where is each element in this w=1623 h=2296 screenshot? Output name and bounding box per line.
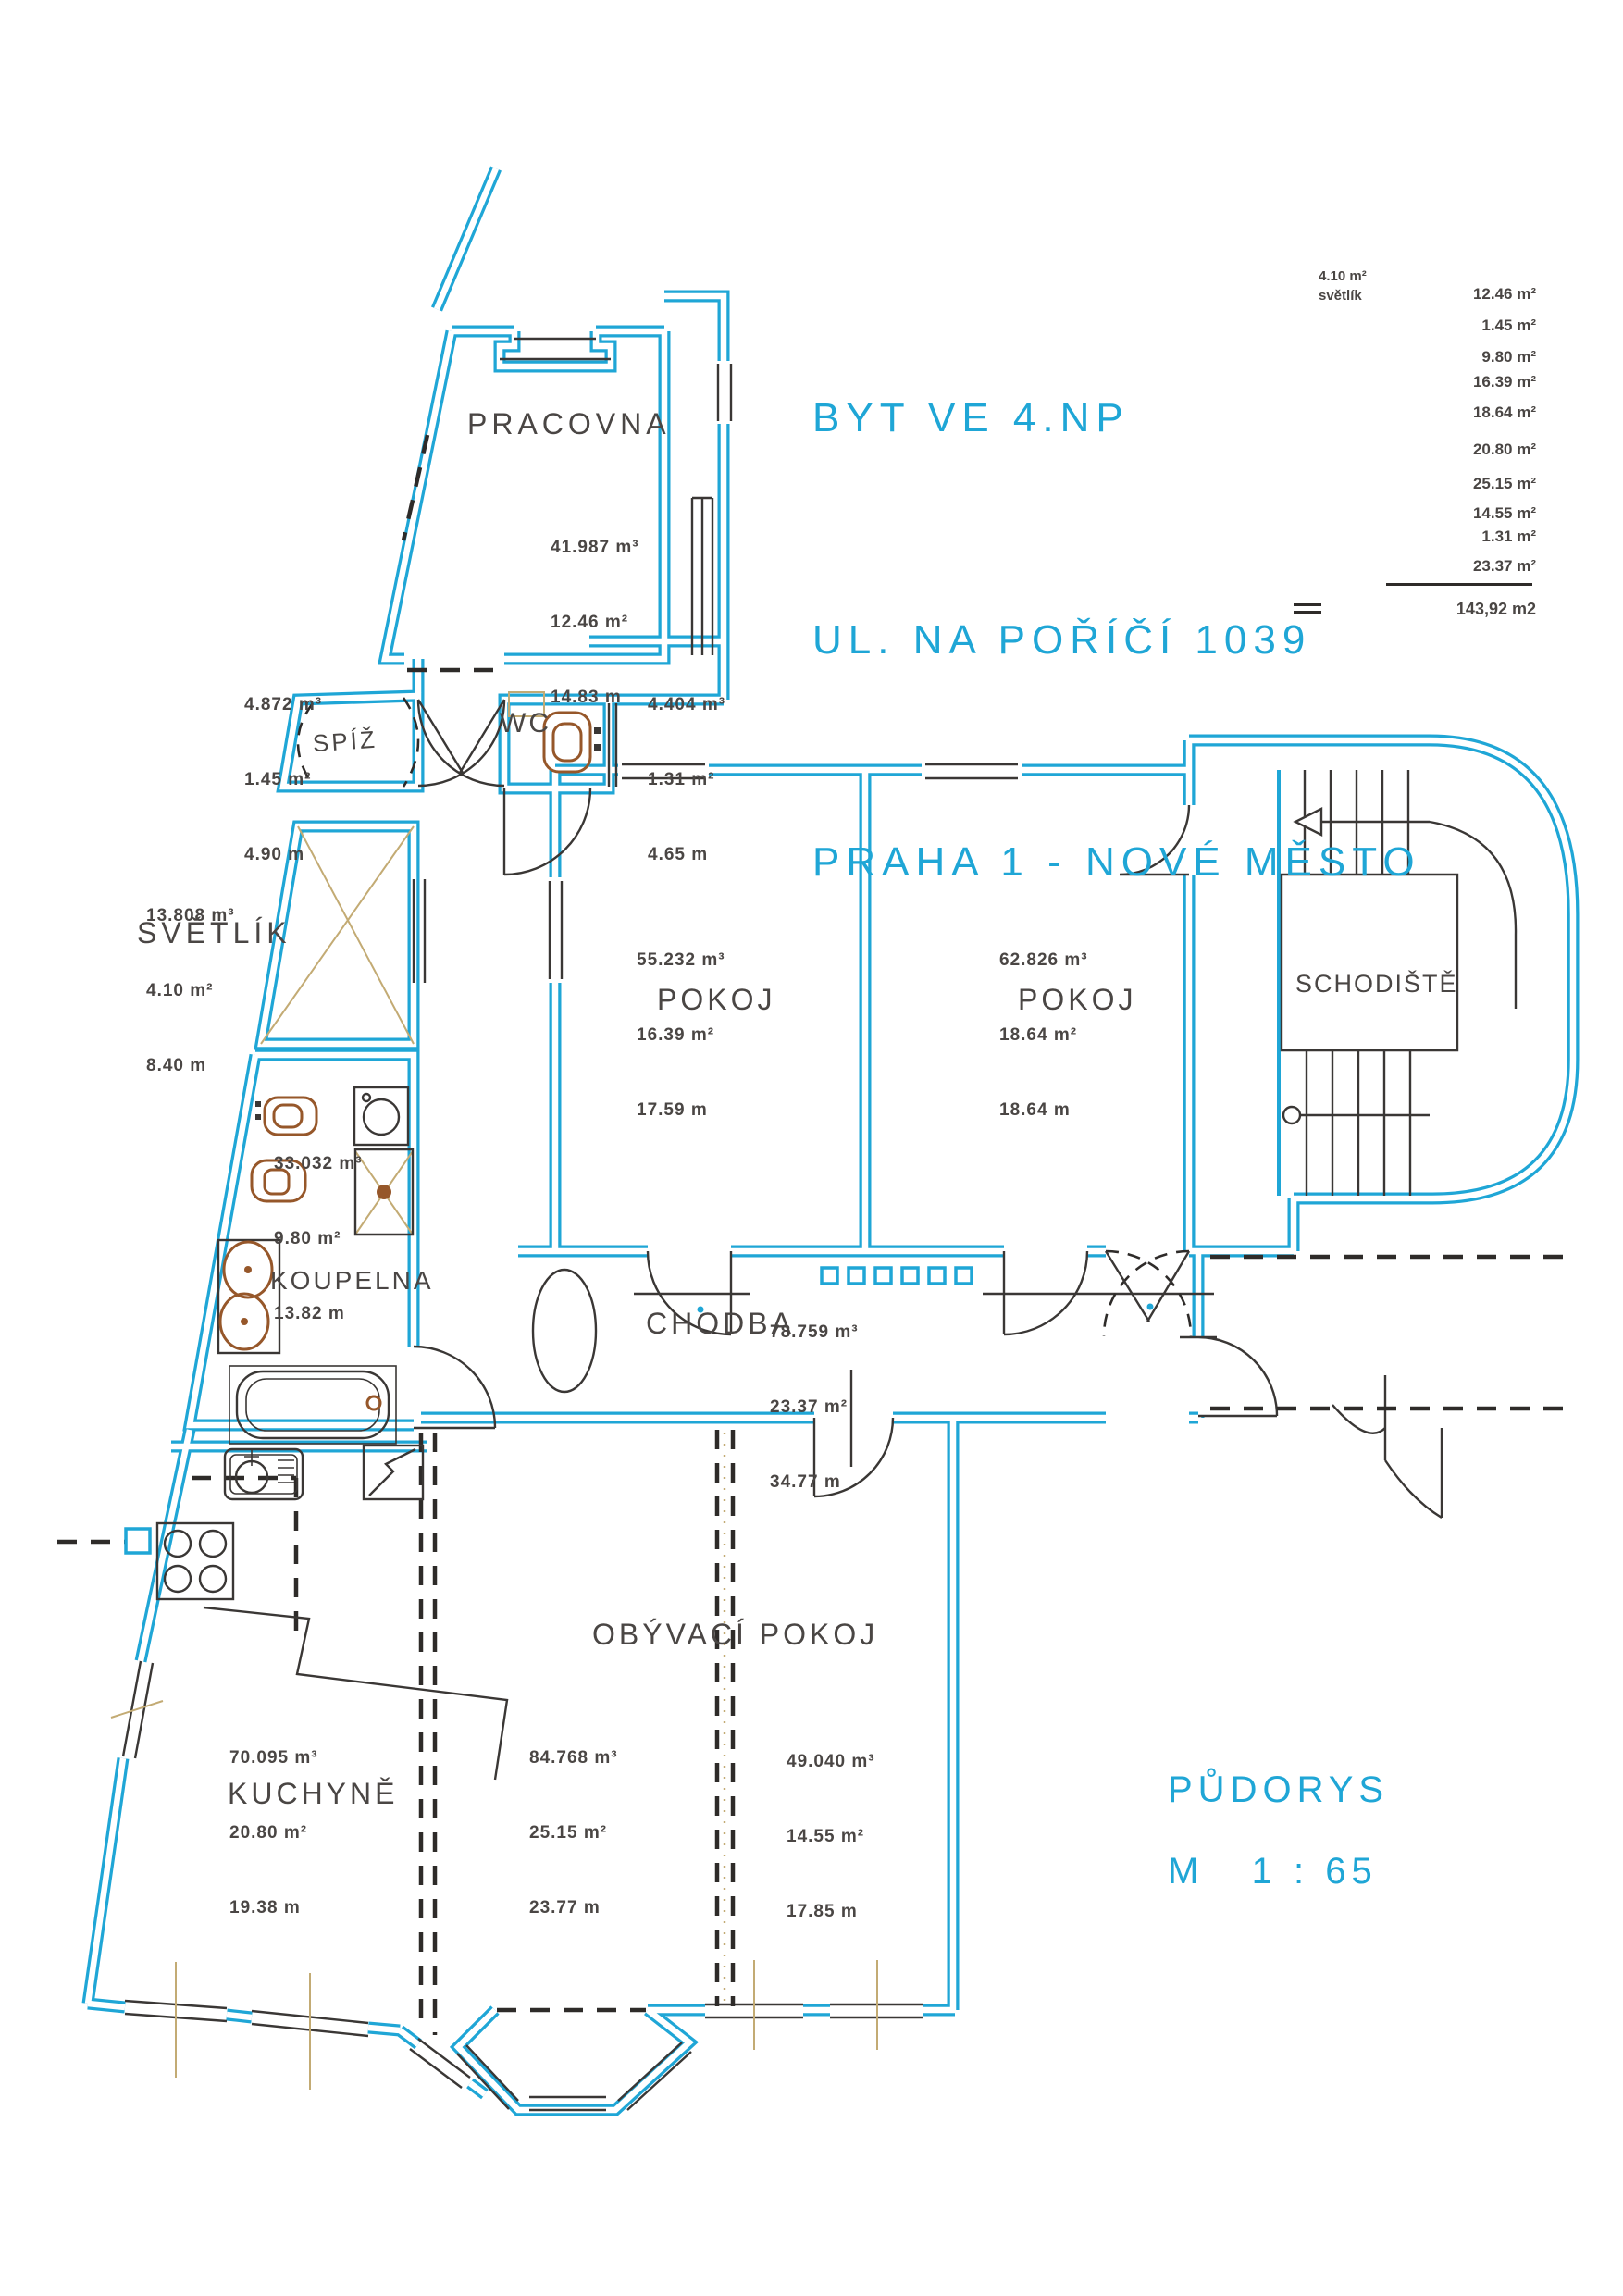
chodba-perimeter: 34.77 m bbox=[770, 1470, 859, 1495]
obyvaci-label: OBÝVACÍ POKOJ bbox=[592, 1618, 878, 1652]
drawing-scale-label: M 1 : 65 bbox=[1168, 1851, 1378, 1893]
kuchyne-label: KUCHYNĚ bbox=[228, 1777, 398, 1811]
wc-perimeter: 4.65 m bbox=[648, 842, 725, 867]
summary-equals-mark bbox=[1294, 603, 1321, 606]
pokoj2-perimeter: 18.64 m bbox=[999, 1098, 1088, 1123]
summary-area-row: 25.15 m² bbox=[1430, 475, 1536, 493]
summary-area-row: 23.37 m² bbox=[1430, 557, 1536, 576]
pokoj2-area: 18.64 m² bbox=[999, 1023, 1088, 1048]
wc-values: 4.404 m³ 1.31 m² 4.65 m bbox=[648, 642, 725, 917]
svetlik-perimeter: 8.40 m bbox=[146, 1053, 235, 1078]
summary-area-row: 9.80 m² bbox=[1430, 348, 1536, 366]
summary-area-row: 1.45 m² bbox=[1430, 316, 1536, 335]
summary-svetlik-area: 4.10 m² bbox=[1319, 267, 1367, 286]
svetlik-label: SVĚTLÍK bbox=[137, 916, 291, 950]
koupelna-area: 9.80 m² bbox=[274, 1226, 363, 1251]
koupelna-label: KOUPELNA bbox=[270, 1266, 434, 1296]
obyvaci-right-values: 49.040 m³ 14.55 m² 17.85 m bbox=[787, 1699, 875, 1974]
summary-svetlik-label: světlík bbox=[1319, 286, 1367, 305]
kuchyne-values: 70.095 m³ 20.80 m² 19.38 m bbox=[229, 1695, 318, 1970]
chodba-volume: 78.759 m³ bbox=[770, 1320, 859, 1345]
summary-area-row: 18.64 m² bbox=[1430, 403, 1536, 422]
spiz-label: SPÍŽ bbox=[312, 726, 378, 759]
kuchyne-volume: 70.095 m³ bbox=[229, 1745, 318, 1770]
title-line-1: BYT VE 4.NP bbox=[812, 381, 1421, 455]
pracovna-area: 12.46 m² bbox=[551, 610, 639, 635]
drawing-title: BYT VE 4.NP UL. NA POŘÍČÍ 1039 PRAHA 1 -… bbox=[812, 233, 1421, 1048]
wc-area: 1.31 m² bbox=[648, 767, 725, 792]
summary-total-rule bbox=[1386, 583, 1532, 586]
schodiste-label: SCHODIŠTĚ bbox=[1295, 970, 1458, 999]
chodba-area: 23.37 m² bbox=[770, 1395, 859, 1420]
pracovna-values: 41.987 m³ 12.46 m² 14.83 m bbox=[551, 485, 639, 760]
obyvaci-right-volume: 49.040 m³ bbox=[787, 1749, 875, 1774]
pokoj1-perimeter: 17.59 m bbox=[637, 1098, 725, 1123]
summary-area-row: 16.39 m² bbox=[1430, 373, 1536, 391]
title-line-2: UL. NA POŘÍČÍ 1039 bbox=[812, 603, 1421, 677]
spiz-perimeter: 4.90 m bbox=[244, 842, 322, 867]
pracovna-label: PRACOVNA bbox=[467, 407, 671, 441]
obyvaci-right-perimeter: 17.85 m bbox=[787, 1899, 875, 1924]
floor-plan-page: BYT VE 4.NP UL. NA POŘÍČÍ 1039 PRAHA 1 -… bbox=[0, 0, 1623, 2296]
summary-svetlik: 4.10 m² světlík bbox=[1319, 267, 1367, 305]
svetlik-values: 13.808 m³ 4.10 m² 8.40 m bbox=[146, 853, 235, 1128]
summary-area-row: 20.80 m² bbox=[1430, 441, 1536, 459]
wc-label: WC bbox=[500, 708, 551, 739]
summary-area-row: 1.31 m² bbox=[1430, 527, 1536, 546]
kuchyne-perimeter: 19.38 m bbox=[229, 1895, 318, 1920]
summary-area-row: 14.55 m² bbox=[1430, 504, 1536, 523]
wc-volume: 4.404 m³ bbox=[648, 692, 725, 717]
spiz-area: 1.45 m² bbox=[244, 767, 322, 792]
koupelna-values: 33.032 m³ 9.80 m² 13.82 m bbox=[274, 1101, 363, 1376]
pracovna-volume: 41.987 m³ bbox=[551, 535, 639, 560]
pokoj1-values: 55.232 m³ 16.39 m² 17.59 m bbox=[637, 898, 725, 1173]
obyvaci-left-area: 25.15 m² bbox=[529, 1820, 618, 1845]
title-line-3: PRAHA 1 - NOVÉ MĚSTO bbox=[812, 825, 1421, 900]
spiz-volume: 4.872 m³ bbox=[244, 692, 322, 717]
pracovna-perimeter: 14.83 m bbox=[551, 685, 639, 710]
pokoj1-label: POKOJ bbox=[657, 983, 775, 1017]
pokoj2-volume: 62.826 m³ bbox=[999, 948, 1088, 973]
chodba-values: 78.759 m³ 23.37 m² 34.77 m bbox=[770, 1270, 859, 1545]
koupelna-perimeter: 13.82 m bbox=[274, 1301, 363, 1326]
drawing-type-label: PŮDORYS bbox=[1168, 1769, 1389, 1811]
pokoj2-label: POKOJ bbox=[1018, 983, 1136, 1017]
pokoj2-values: 62.826 m³ 18.64 m² 18.64 m bbox=[999, 898, 1088, 1173]
obyvaci-left-values: 84.768 m³ 25.15 m² 23.77 m bbox=[529, 1695, 618, 1970]
summary-total: 143,92 m2 bbox=[1430, 600, 1536, 619]
obyvaci-right-area: 14.55 m² bbox=[787, 1824, 875, 1849]
summary-area-row: 12.46 m² bbox=[1430, 285, 1536, 304]
obyvaci-left-volume: 84.768 m³ bbox=[529, 1745, 618, 1770]
pokoj1-area: 16.39 m² bbox=[637, 1023, 725, 1048]
spiz-values: 4.872 m³ 1.45 m² 4.90 m bbox=[244, 642, 322, 917]
koupelna-volume: 33.032 m³ bbox=[274, 1151, 363, 1176]
obyvaci-left-perimeter: 23.77 m bbox=[529, 1895, 618, 1920]
svetlik-area: 4.10 m² bbox=[146, 978, 235, 1003]
pokoj1-volume: 55.232 m³ bbox=[637, 948, 725, 973]
summary-equals-mark bbox=[1294, 611, 1321, 614]
kuchyne-area: 20.80 m² bbox=[229, 1820, 318, 1845]
